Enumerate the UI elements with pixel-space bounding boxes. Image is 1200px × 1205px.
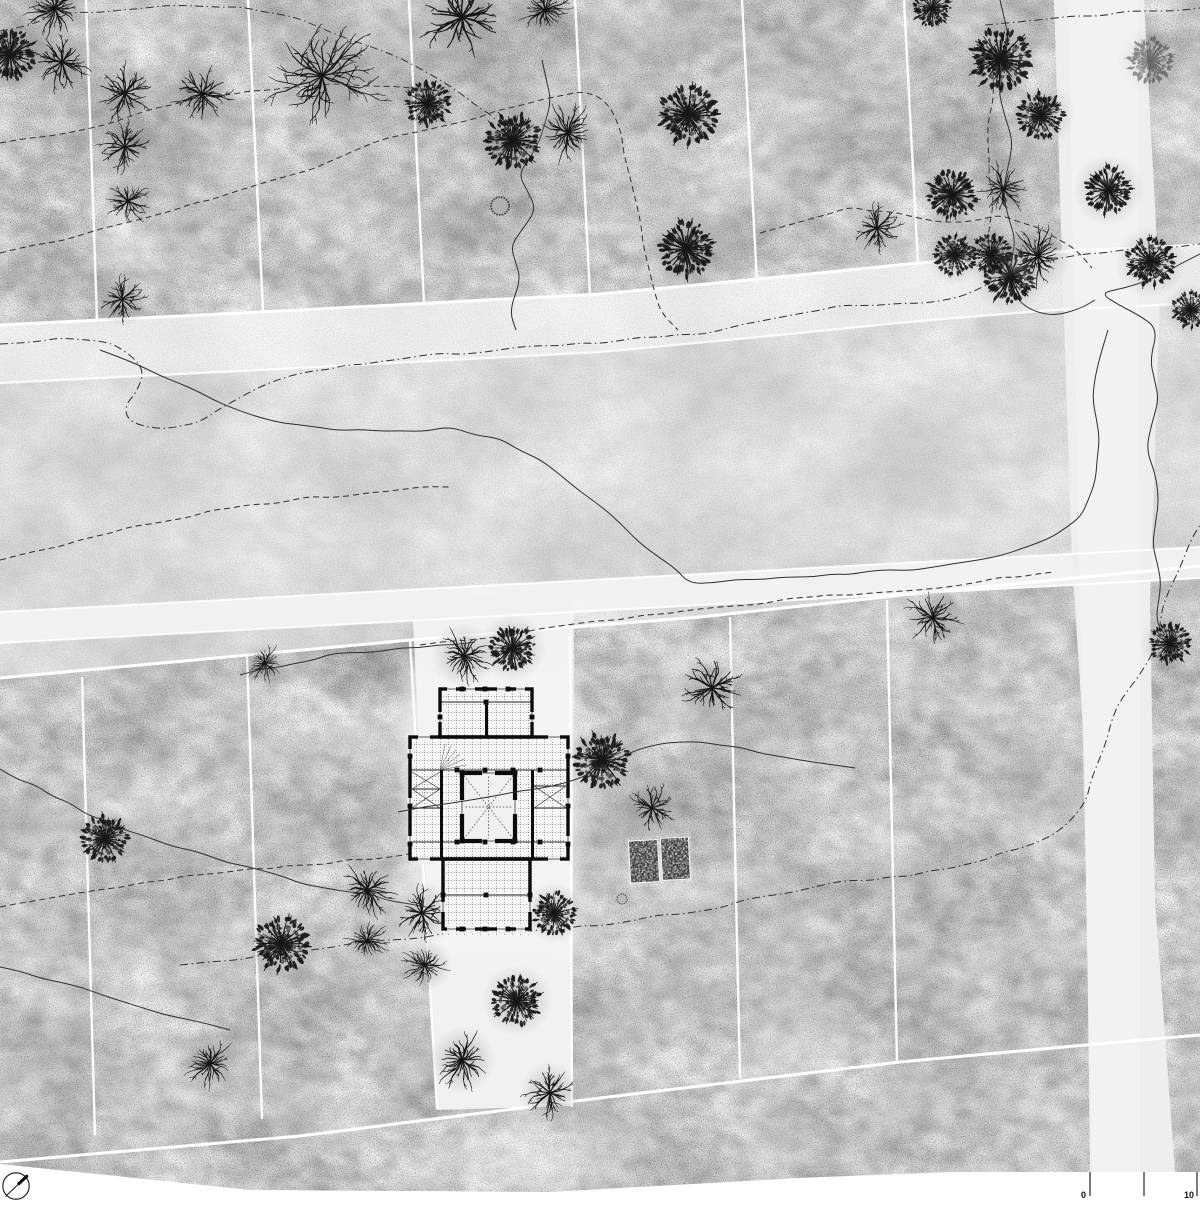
svg-text:0: 0	[1081, 1190, 1086, 1200]
svg-text:10: 10	[1184, 1190, 1194, 1200]
